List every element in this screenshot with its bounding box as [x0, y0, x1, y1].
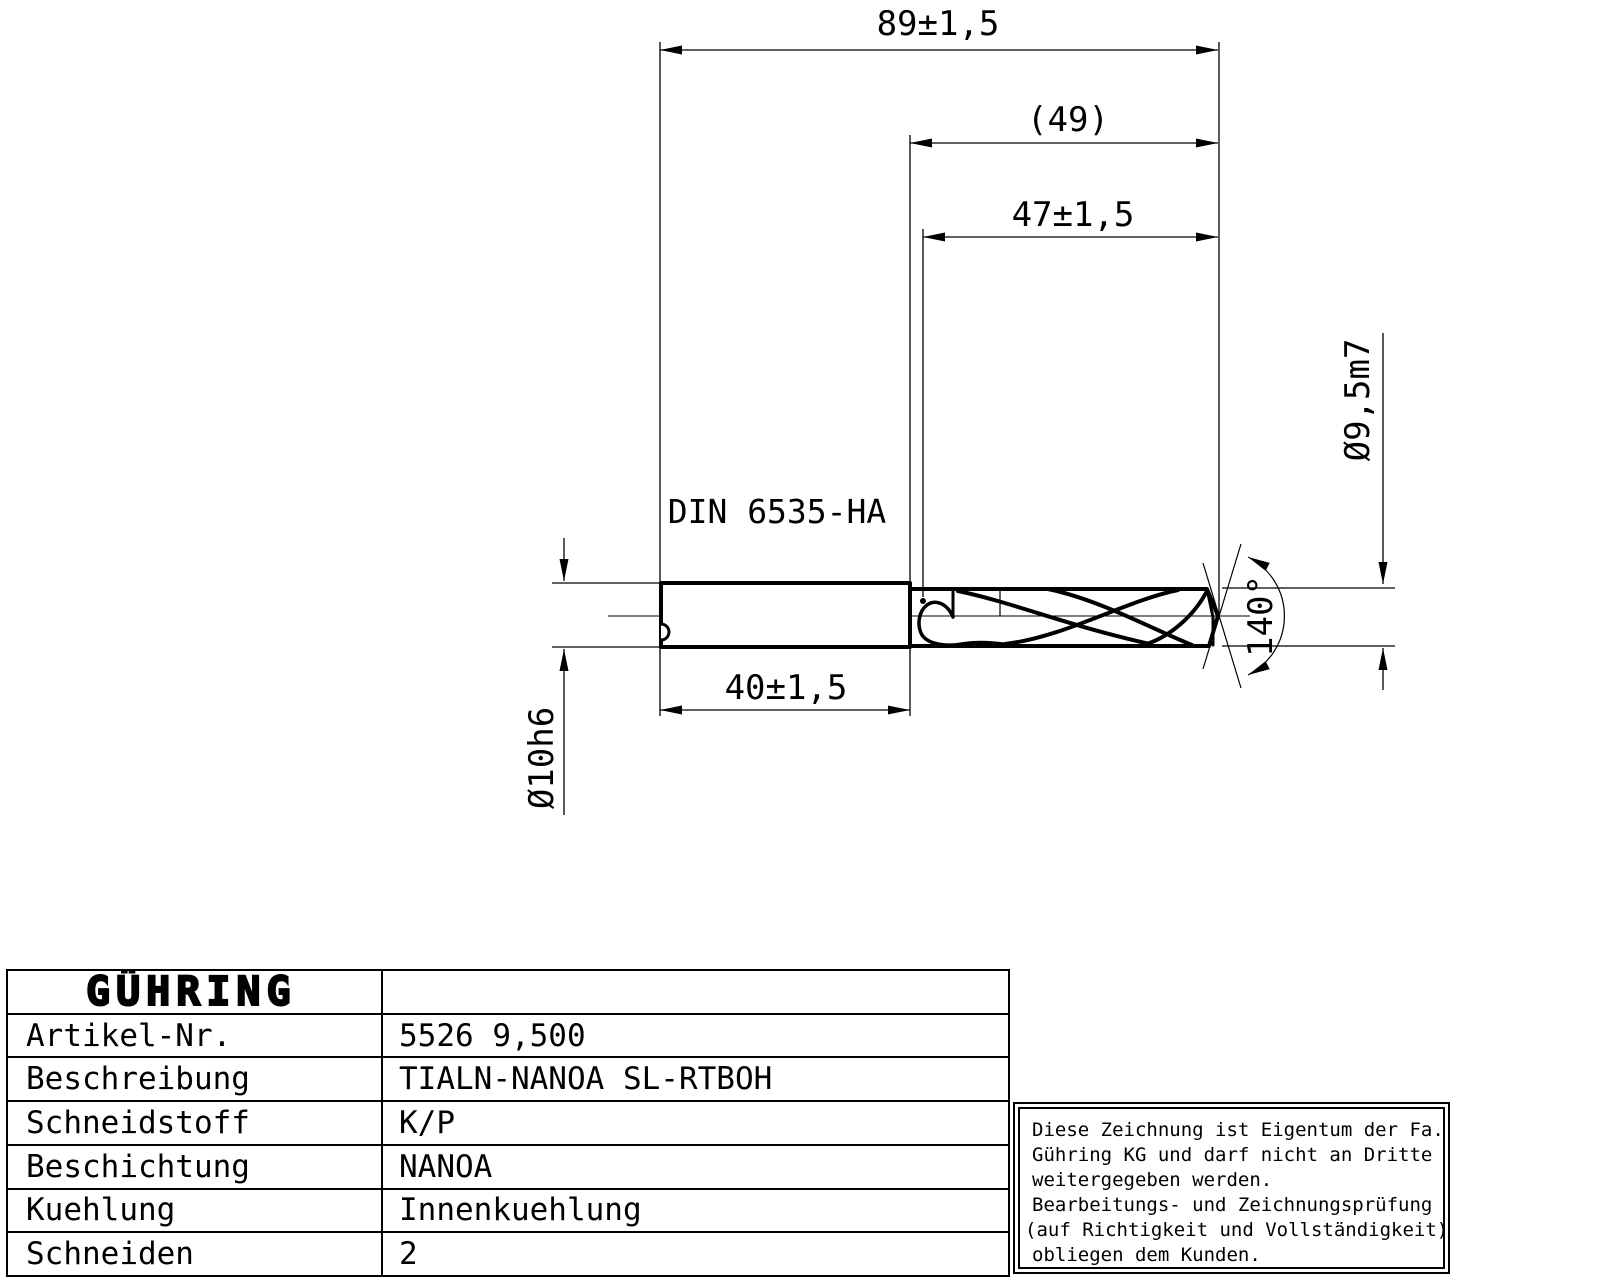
row-value: 2 — [383, 1233, 1008, 1275]
row-label: Kuehlung — [8, 1190, 383, 1232]
drill-shank — [661, 583, 910, 647]
row-value: K/P — [383, 1102, 1008, 1144]
point-angle-label: 140° — [1241, 575, 1281, 657]
brand-empty-cell — [383, 971, 1008, 1013]
coolant-hole — [661, 624, 669, 640]
brand-logo: GÜHRING — [8, 971, 381, 1013]
table-row: Kuehlung Innenkuehlung — [8, 1190, 1008, 1234]
shank-diameter-label: Ø10h6 — [522, 707, 562, 809]
row-value: 5526 9,500 — [383, 1015, 1008, 1057]
disclaimer-line: weitergegeben werden. — [1032, 1168, 1443, 1193]
disclaimer-line: Bearbeitungs- und Zeichnungsprüfung — [1032, 1193, 1443, 1218]
disclaimer-line: (auf Richtigkeit und Vollständigkeit) — [1025, 1218, 1443, 1243]
disclaimer-line: Gühring KG und darf nicht an Dritte — [1032, 1143, 1443, 1168]
disclaimer-box: Diese Zeichnung ist Eigentum der Fa. Güh… — [1013, 1102, 1450, 1274]
dimension-reference-length-label: (49) — [1027, 100, 1109, 140]
row-label: Schneiden — [8, 1233, 383, 1275]
dimension-shank-length-label: 40±1,5 — [725, 668, 848, 708]
brand-logo-text: GÜHRING — [86, 971, 297, 1013]
table-row: Beschichtung NANOA — [8, 1146, 1008, 1190]
table-row: Artikel-Nr. 5526 9,500 — [8, 1015, 1008, 1059]
table-row: Schneidstoff K/P — [8, 1102, 1008, 1146]
flute-runout-curve — [919, 602, 1012, 645]
drill-body — [661, 583, 1218, 647]
row-value: NANOA — [383, 1146, 1008, 1188]
brand-cell: GÜHRING — [8, 971, 383, 1013]
reference-point-dot — [920, 598, 926, 604]
row-label: Schneidstoff — [8, 1102, 383, 1144]
row-value: TIALN-NANOA SL-RTBOH — [383, 1058, 1008, 1100]
dimension-lines — [564, 50, 1383, 815]
table-row: Beschreibung TIALN-NANOA SL-RTBOH — [8, 1058, 1008, 1102]
cutting-diameter-label: Ø9,5m7 — [1338, 339, 1378, 462]
drawing-sheet: 89±1,5 (49) 47±1,5 40±1,5 DIN 6535-HA Ø1… — [0, 0, 1600, 1280]
dimension-overall-length-label: 89±1,5 — [877, 4, 1000, 44]
disclaimer-line: obliegen dem Kunden. — [1032, 1243, 1443, 1268]
table-row-brand: GÜHRING — [8, 971, 1008, 1015]
dimension-flute-length-label: 47±1,5 — [1012, 195, 1135, 235]
table-row: Schneiden 2 — [8, 1233, 1008, 1275]
shank-standard-label: DIN 6535-HA — [668, 492, 887, 531]
row-value: Innenkuehlung — [383, 1190, 1008, 1232]
title-block: GÜHRING Artikel-Nr. 5526 9,500 Beschreib… — [6, 969, 1010, 1277]
row-label: Beschichtung — [8, 1146, 383, 1188]
disclaimer-text: Diese Zeichnung ist Eigentum der Fa. Güh… — [1018, 1107, 1445, 1269]
row-label: Artikel-Nr. — [8, 1015, 383, 1057]
row-label: Beschreibung — [8, 1058, 383, 1100]
flute-helix-curves — [958, 589, 1207, 646]
disclaimer-line: Diese Zeichnung ist Eigentum der Fa. — [1032, 1118, 1443, 1143]
